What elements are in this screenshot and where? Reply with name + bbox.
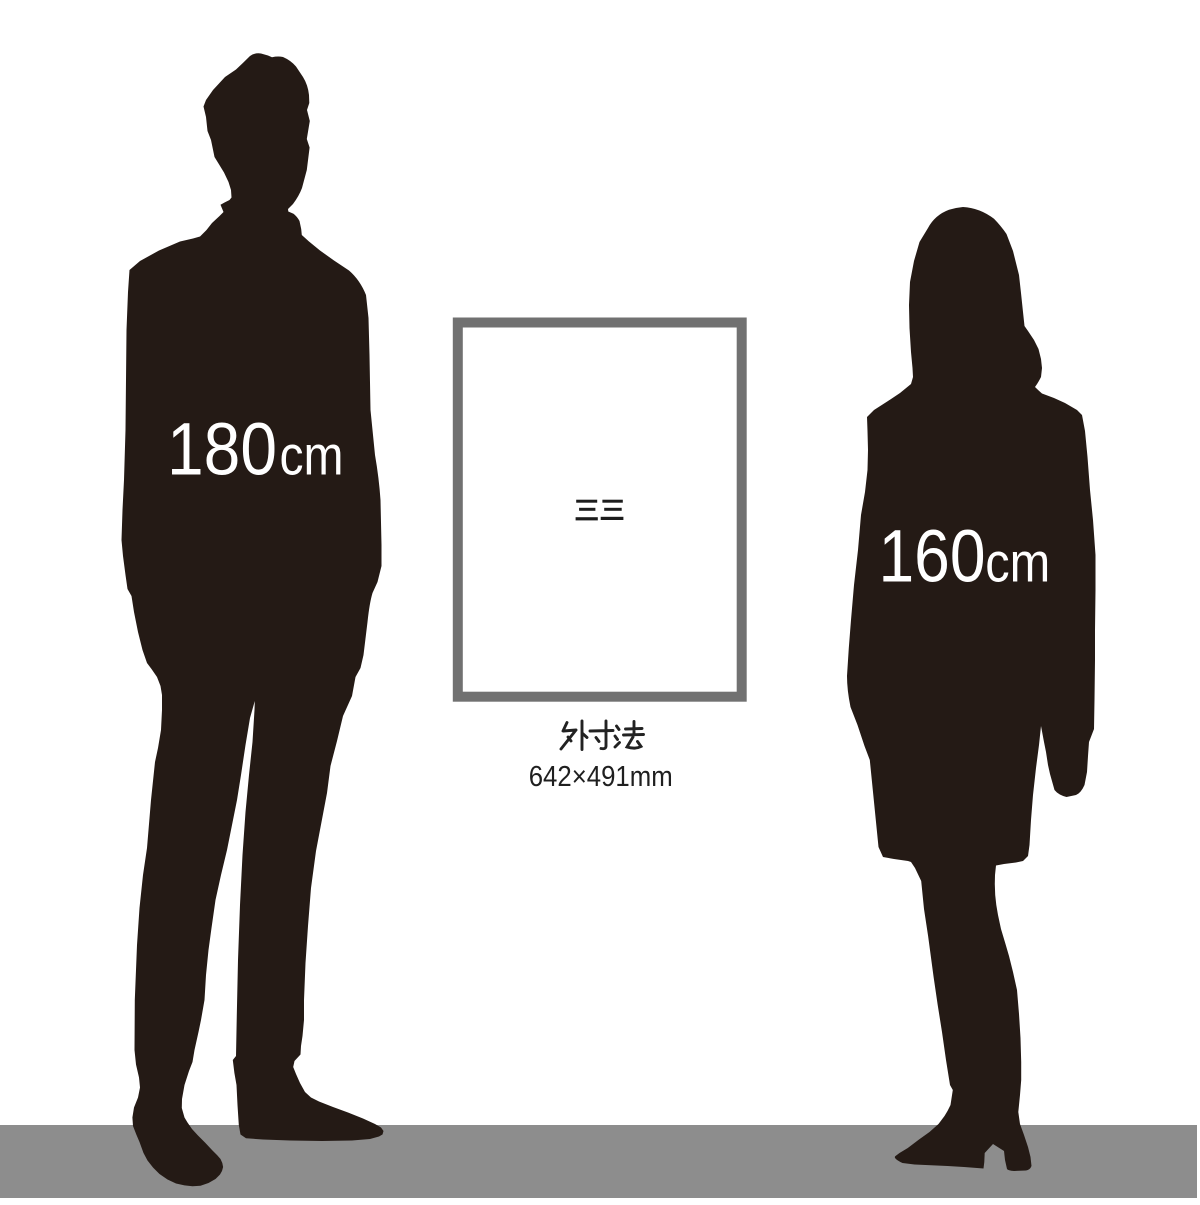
svg-text:cm: cm (280, 424, 344, 487)
svg-text:642×491mm: 642×491mm (529, 761, 673, 793)
svg-text:cm: cm (985, 531, 1050, 594)
svg-text:160: 160 (879, 515, 986, 598)
svg-text:180: 180 (167, 408, 277, 491)
